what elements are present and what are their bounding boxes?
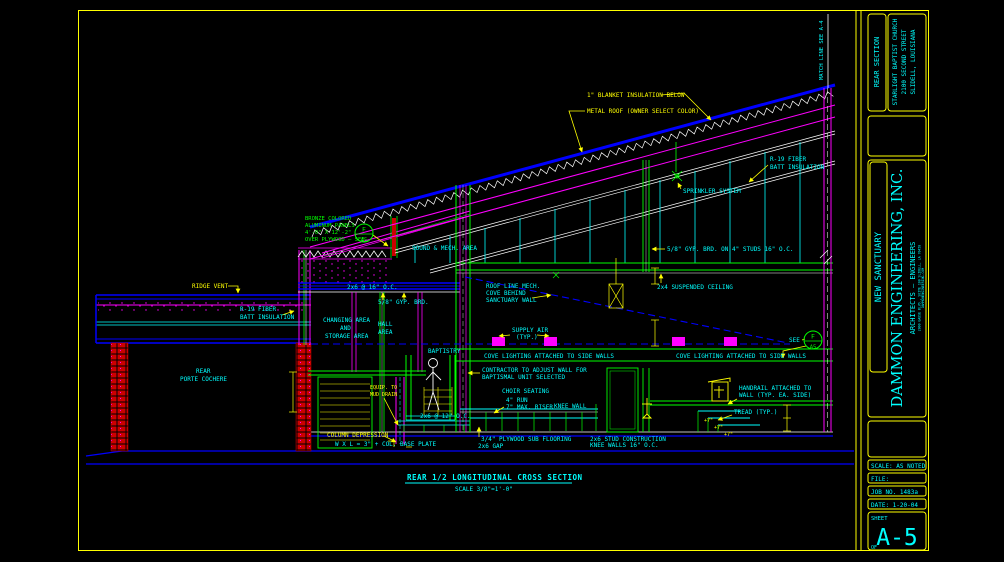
label-riser-plus7-3: +7": [724, 432, 733, 438]
label-platform-2x6: 2x6 @ 12" O.C.: [420, 413, 471, 420]
label-cove-lighting-right: COVE LIGHTING ATTACHED TO SIDE WALLS: [676, 353, 806, 360]
label-equip-drain-1: EQUIP. TO: [370, 385, 397, 391]
label-panels-2: ALUMINUM PANELS: [305, 223, 355, 229]
label-porte-cochere-1: REAR: [196, 368, 211, 375]
cad-sheet: F A5 F A5 RIDGE VENT R-19 FIBER BATT INS…: [0, 0, 1004, 562]
label-baptistry: BAPTISTRY: [428, 348, 461, 355]
titleblock-scale: SCALE: AS NOTED: [871, 463, 926, 470]
label-stud-knee-2: KNEE WALLS 16" O.C.: [590, 442, 659, 449]
label-match-line: MATCH LINE SEE A-4: [819, 20, 825, 80]
label-metal-roof: METAL ROOF (OWNER SELECT COLOR): [587, 108, 699, 115]
label-panels-1: BRONZE COLORED: [305, 216, 351, 222]
label-gyp-studs: 5/8" GYP. BRD. ON 4" STUDS 16" O.C.: [667, 246, 793, 253]
label-roof-line-1: ROOF LINE MECH.: [486, 283, 540, 290]
titleblock-church-1: STARLIGHT BAPTIST CHURCH: [892, 18, 899, 105]
label-run-riser-2: 7" MAX. RISER: [506, 404, 553, 411]
label-2x6-gap: 2x6 GAP: [478, 443, 504, 450]
callout-sheet-ref: A5: [810, 345, 817, 351]
callout-detail-letter: F: [362, 226, 366, 234]
titleblock-church-2: 2100 SECOND STREET: [901, 29, 908, 94]
titleblock-sheet-number: A-5: [876, 525, 918, 551]
label-contractor-1: CONTRACTOR TO ADJUST WALL FOR: [482, 367, 587, 374]
label-see: SEE: [789, 337, 800, 344]
label-panels-4: OVER PLYWOOD — SEE: [305, 237, 365, 243]
label-changing-2: AND: [340, 325, 351, 332]
label-knee-wall: KNEE WALL: [554, 403, 587, 410]
label-r19-left-1: R-19 FIBER: [240, 306, 277, 313]
titleblock-sheet-label: SHEET: [871, 516, 888, 522]
label-panels-3: 4'-0" X 12'-2": [305, 230, 351, 236]
label-equip-drain-2: MUD DRAIN: [370, 392, 397, 398]
label-riser-plus7-2: +7": [714, 425, 723, 431]
titleblock-church-3: SLIDELL, LOUISIANA: [910, 29, 917, 94]
titleblock-project: NEW SANCTUARY: [874, 231, 884, 302]
label-r19-right-1: R-19 FIBER: [770, 156, 807, 163]
label-sprinkler: SPRINKLER SYSTEM: [683, 188, 741, 195]
drawing-scale: SCALE 3/8"=1'-0": [455, 486, 513, 493]
label-porte-cochere-2: PORTE COCHERE: [180, 376, 227, 383]
label-suspended-ceiling: 2x4 SUSPENDED CEILING: [657, 284, 733, 291]
label-run-riser-1: 4" RUN: [506, 397, 528, 404]
label-plywood: 3/4" PLYWOOD SUB FLOORING: [481, 436, 572, 443]
titleblock-of-label: OF: [871, 545, 877, 551]
titleblock-job: JOB NO. 1483a: [871, 489, 918, 496]
label-hall-1: HALL: [378, 321, 393, 328]
label-choir-seating: CHOIR SEATING: [502, 388, 549, 395]
label-cove-lighting-left: COVE LIGHTING ATTACHED TO SIDE WALLS: [484, 353, 614, 360]
titleblock-firm-addr2: DAMMONENGINEERING.COM: [921, 268, 925, 308]
label-roof-line-3: SANCTUARY WALL: [486, 297, 537, 304]
label-changing-1: CHANGING AREA: [323, 317, 370, 324]
label-riser-plus7-1: +7": [704, 418, 713, 424]
label-base-plate: W X L = 3" + COL. BASE PLATE: [335, 441, 437, 448]
label-hall-2: AREA: [378, 329, 393, 336]
label-r19-right-2: BATT INSULATION: [770, 164, 825, 171]
drawing-title: REAR 1/2 LONGITUDINAL CROSS SECTION: [407, 473, 583, 482]
cad-plot-viewport: F A5 F A5 RIDGE VENT R-19 FIBER BATT INS…: [0, 0, 1004, 562]
label-contractor-2: BAPTISMAL UNIT SELECTED: [482, 374, 565, 381]
label-handrail-1: HANDRAIL ATTACHED TO: [739, 385, 812, 392]
label-supply-air-2: (TYP.): [516, 334, 538, 341]
label-changing-3: STORAGE AREA: [325, 333, 369, 340]
titleblock-file: FILE:: [871, 476, 889, 483]
label-gyp-small: 5/8" GYP. BRD.: [378, 299, 429, 306]
label-handrail-2: WALL (TYP. EA. SIDE): [739, 392, 811, 399]
label-tread: TREAD (TYP.): [734, 409, 777, 416]
label-beam-2x6: 2x6 @ 16" O.C.: [347, 284, 398, 291]
titleblock-date: DATE: 1-20-04: [871, 502, 918, 509]
label-blanket-insulation: 1" BLANKET INSULATION BELOW: [587, 92, 685, 99]
titleblock-firm-sub: ARCHITECTS — ENGINEERS: [909, 242, 917, 335]
label-r19-left-2: BATT INSULATION: [240, 314, 295, 321]
label-sound-mech: SOUND & MECH. AREA: [412, 245, 477, 252]
titleblock-section: REAR SECTION: [873, 37, 881, 88]
titleblock-firm-name: DAMMON ENGINEERING, INC.: [890, 169, 906, 408]
callout-detail-letter: F: [811, 333, 815, 341]
label-supply-air-1: SUPPLY AIR: [512, 327, 549, 334]
label-roof-line-2: COVE BEHIND: [486, 290, 526, 297]
label-ridge-vent: RIDGE VENT: [192, 283, 229, 290]
label-column-depression: COLUMN DEPRESSION: [327, 432, 389, 439]
